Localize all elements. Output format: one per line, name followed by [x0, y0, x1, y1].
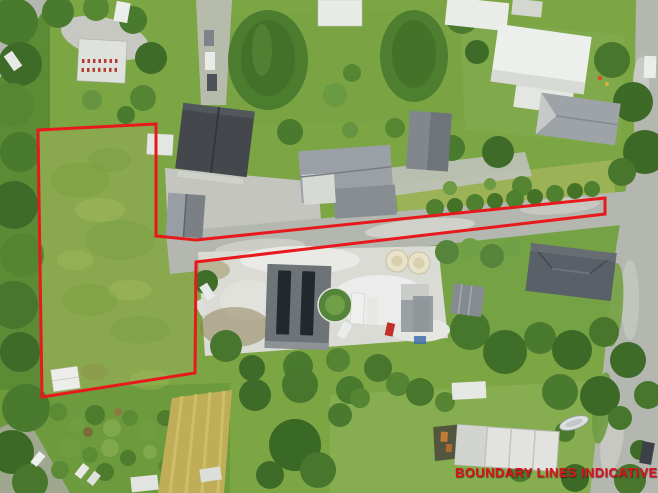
dark-roof-house: [174, 103, 254, 185]
gray-shed: [166, 193, 206, 238]
small-white-shed: [130, 475, 158, 493]
blue-tarp: [414, 336, 426, 344]
white-van-road: [644, 56, 657, 78]
white-building: [318, 0, 362, 26]
solar-panel: [276, 270, 291, 334]
parked-car: [205, 52, 215, 70]
round-garden: [318, 288, 352, 322]
tunnel-house: [146, 133, 173, 155]
aerial-scene: [0, 0, 658, 493]
gray-house: [406, 111, 452, 172]
white-van: [350, 293, 365, 325]
yard-building: [401, 284, 433, 332]
greenhouse: [77, 39, 127, 83]
conifer-tree: [380, 10, 448, 102]
small-shed: [450, 283, 484, 317]
paddock-shed: [51, 366, 81, 392]
white-shed: [452, 381, 487, 400]
solar-panel: [300, 271, 315, 335]
parked-car: [207, 74, 217, 91]
aerial-photo: BOUNDARY LINES INDICATIVE O: [0, 0, 658, 493]
conifer-tree: [228, 10, 308, 110]
parked-car: [204, 30, 214, 46]
boundary-disclaimer-text: BOUNDARY LINES INDICATIVE O: [455, 465, 658, 480]
trailer: [366, 297, 378, 325]
